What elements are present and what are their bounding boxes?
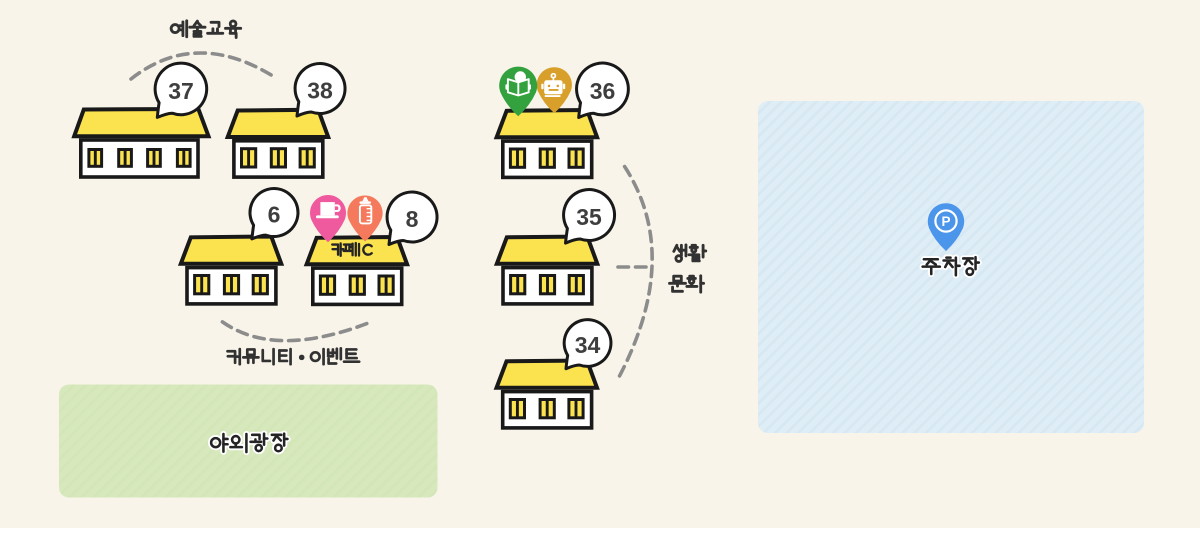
svg-text:37: 37 <box>168 78 194 104</box>
svg-text:P: P <box>941 214 950 229</box>
svg-text:36: 36 <box>590 78 616 104</box>
svg-text:38: 38 <box>307 78 333 104</box>
svg-text:35: 35 <box>576 204 602 230</box>
svg-text:8: 8 <box>406 206 419 232</box>
svg-text:6: 6 <box>268 202 281 228</box>
svg-text:34: 34 <box>575 332 601 358</box>
